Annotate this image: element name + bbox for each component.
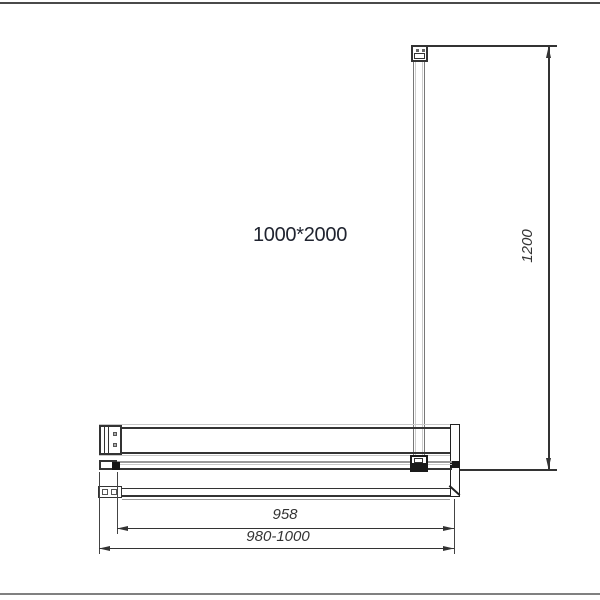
profile-screw-icon: [113, 443, 117, 447]
image-top-border: [0, 2, 600, 4]
technical-drawing-shower-panel: 958 980-1000 1200 1000*2000: [0, 0, 600, 600]
glass-edge-line-gray: [117, 461, 452, 463]
arrowhead-right-icon: [443, 526, 454, 532]
dimension-label-bar-length: 1200: [520, 215, 536, 277]
dimension-line-1200: [548, 46, 550, 470]
panel-outline-top-light: [99, 424, 460, 425]
bracket-slot-icon: [102, 489, 108, 495]
support-bar: [413, 62, 425, 455]
stabilizer-line-top: [122, 488, 450, 489]
dimension-label-total-width: 980-1000: [226, 529, 330, 545]
dimension-label-glass-width: 958: [235, 507, 335, 523]
extension-line-right: [454, 499, 455, 554]
arrowhead-down-icon: [546, 458, 552, 469]
stabilizer-wall-bracket: [98, 486, 122, 498]
extension-line-1200-bottom: [460, 469, 557, 471]
wall-profile-channel-line: [108, 427, 109, 453]
glass-edge-line-dark: [117, 468, 452, 470]
image-bottom-border: [0, 593, 600, 595]
panel-outline-bottom-light: [99, 455, 460, 456]
glass-edge-line-light: [119, 464, 452, 465]
wall-bracket-clamp-block: [112, 462, 120, 470]
stabilizer-line-bottom: [122, 495, 450, 497]
wall-profile: [99, 425, 122, 455]
panel-outline-top: [99, 427, 460, 429]
clamp-jaw: [412, 463, 426, 470]
bracket-screw-icon: [416, 49, 419, 52]
panel-size-label: 1000*2000: [239, 224, 361, 246]
panel-outline-bottom: [99, 452, 460, 454]
extension-line-1200-top: [428, 45, 557, 47]
support-bar-glass-clamp: [410, 455, 428, 472]
bracket-screw-icon: [422, 49, 425, 52]
extension-line-980-left: [99, 472, 100, 554]
bracket-clamp-shoe: [414, 53, 425, 59]
arrowhead-left-icon: [117, 526, 128, 532]
extension-line-958-left: [117, 472, 118, 534]
arrowhead-up-icon: [546, 47, 552, 58]
arrowhead-left-icon: [99, 546, 110, 552]
profile-screw-icon: [113, 432, 117, 436]
wall-profile-channel-line: [104, 427, 105, 453]
dimension-line-980-1000: [99, 548, 454, 549]
stabilizer-line-shadow: [122, 499, 450, 500]
arrowhead-right-icon: [443, 546, 454, 552]
ceiling-mount-bracket: [411, 45, 428, 62]
